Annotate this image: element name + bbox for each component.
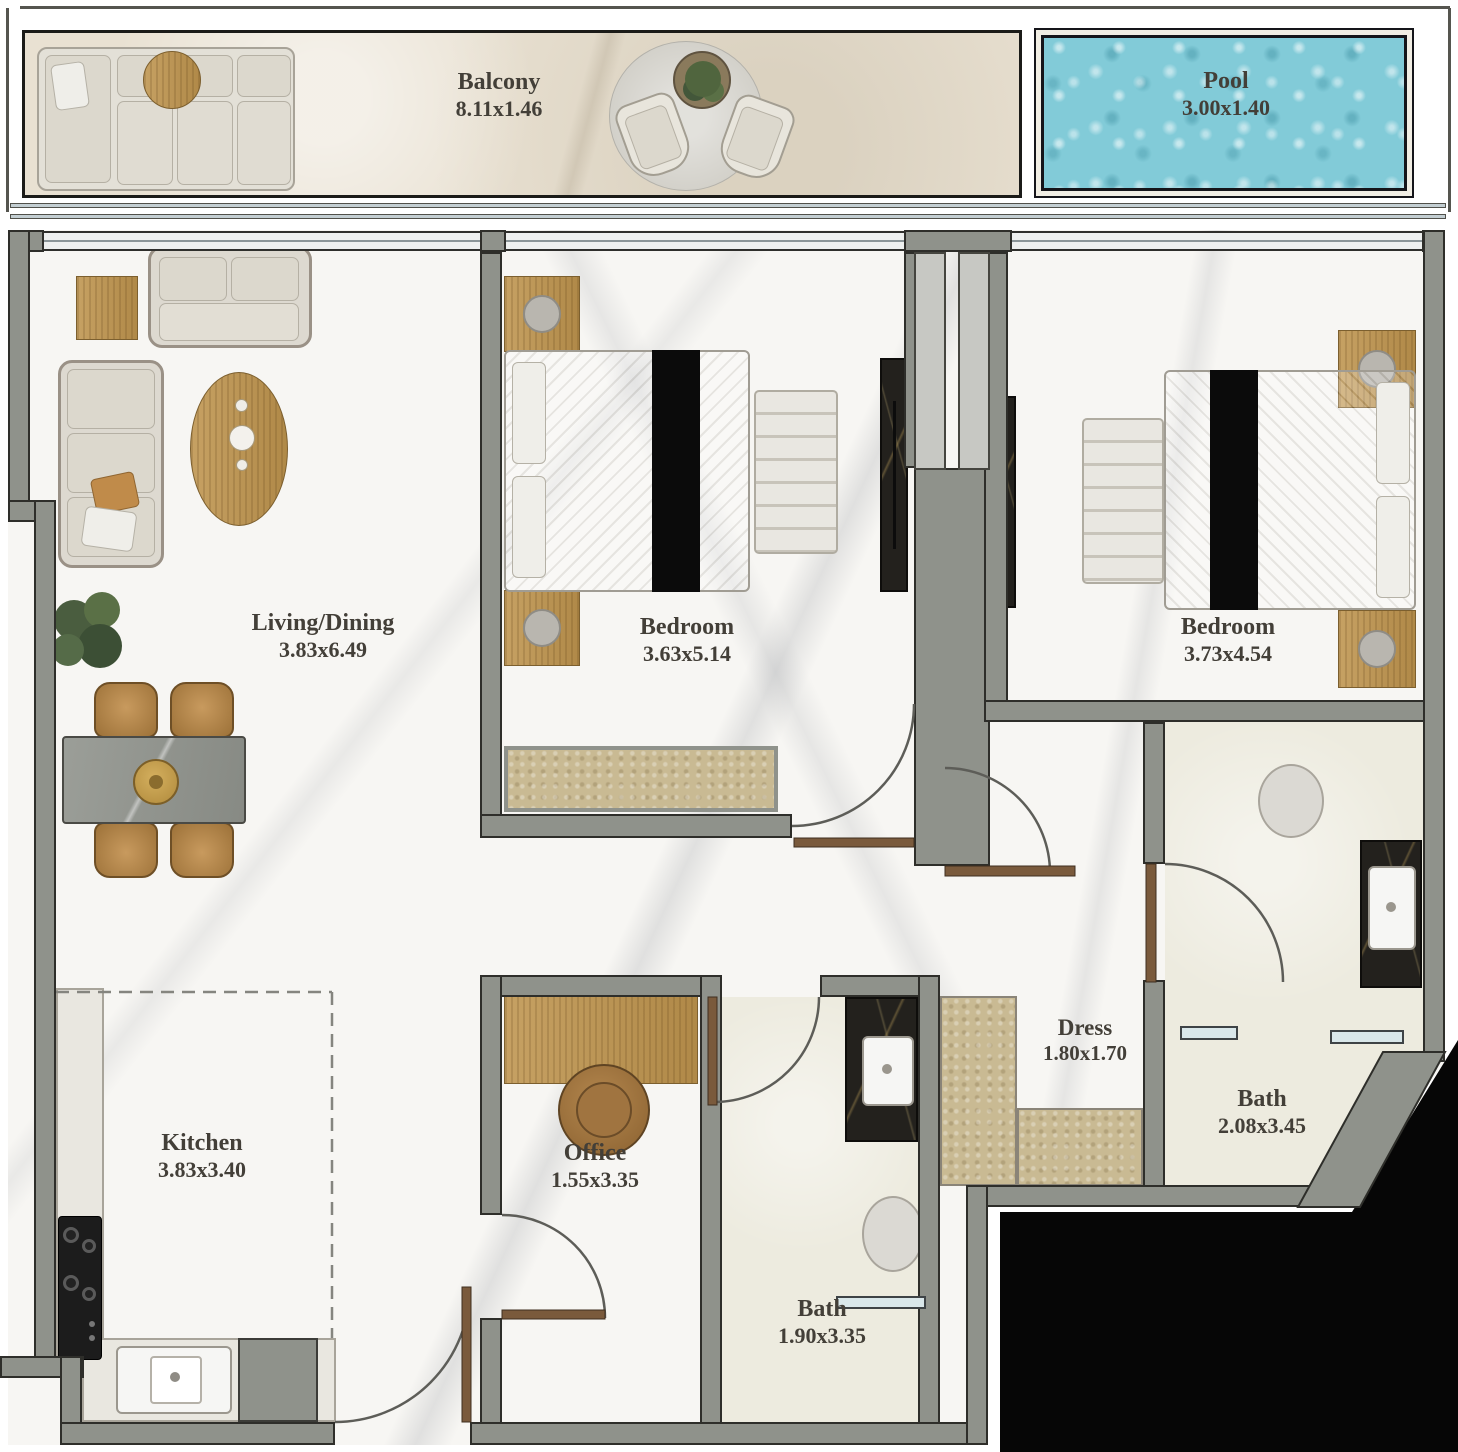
room-dims: 8.11x1.46 bbox=[456, 96, 543, 121]
pool-area: Pool 3.00x1.40 bbox=[1034, 28, 1414, 198]
stove bbox=[58, 1216, 102, 1360]
bed-runner bbox=[652, 350, 700, 592]
wall-lower-right bbox=[966, 1185, 988, 1445]
room-label-dress: Dress 1.80x1.70 bbox=[1043, 1014, 1127, 1066]
sofa-cushion bbox=[67, 369, 155, 429]
dining-table bbox=[62, 736, 246, 824]
washbasin bbox=[862, 1036, 914, 1106]
bench bbox=[1082, 418, 1164, 584]
kitchen-sink bbox=[116, 1346, 232, 1414]
room-name: Bath bbox=[778, 1296, 866, 1323]
table-centerpiece bbox=[133, 759, 179, 805]
room-name: Bath bbox=[1218, 1086, 1306, 1113]
dining-chair bbox=[94, 682, 158, 738]
bedside-lamp bbox=[523, 609, 561, 647]
room-dims: 3.83x3.40 bbox=[158, 1157, 246, 1182]
table-decor bbox=[229, 425, 255, 451]
sink-drain bbox=[170, 1372, 180, 1382]
room-label-living: Living/Dining 3.83x6.49 bbox=[252, 610, 395, 662]
dress-wardrobe bbox=[940, 996, 1017, 1186]
room-label-balcony: Balcony 8.11x1.46 bbox=[456, 69, 543, 121]
nightstand bbox=[1338, 610, 1416, 688]
wall-living-bedroom1 bbox=[480, 252, 502, 836]
wardrobe-handle bbox=[893, 401, 896, 548]
sofa-seat-cushion bbox=[177, 101, 233, 185]
wall-bath2-left bbox=[1143, 722, 1165, 864]
bedside-lamp bbox=[1358, 630, 1396, 668]
toilet bbox=[1258, 764, 1324, 838]
bed bbox=[1164, 370, 1416, 610]
shower-glass bbox=[1330, 1030, 1404, 1044]
wall-bottom-left bbox=[60, 1356, 82, 1426]
window-bedroom1 bbox=[506, 231, 904, 251]
sofa-seat-cushion bbox=[117, 101, 173, 185]
side-table bbox=[76, 276, 138, 340]
chair-seat bbox=[576, 1082, 632, 1138]
loveseat-seat bbox=[159, 303, 299, 341]
wall-left-upper bbox=[8, 230, 30, 522]
dresser bbox=[504, 746, 778, 812]
table-decor bbox=[236, 459, 248, 471]
room-dims: 3.00x1.40 bbox=[1182, 95, 1270, 120]
room-dims: 1.90x3.35 bbox=[778, 1323, 866, 1348]
loveseat bbox=[148, 246, 312, 348]
wall-bath2-left bbox=[1143, 980, 1165, 1187]
coffee-table bbox=[190, 372, 288, 526]
basin-drain bbox=[882, 1064, 892, 1074]
sofa-back-cushion bbox=[237, 55, 291, 97]
wall-bedroom1-bottom bbox=[480, 814, 792, 838]
wall-office-right bbox=[700, 975, 722, 1424]
room-label-kitchen: Kitchen 3.83x3.40 bbox=[158, 1130, 246, 1182]
plant-leaf bbox=[78, 624, 122, 668]
stove-knob bbox=[89, 1335, 95, 1341]
room-label-bath2: Bath 2.08x3.45 bbox=[1218, 1086, 1306, 1138]
outdoor-table bbox=[673, 51, 731, 109]
room-name: Balcony bbox=[456, 69, 543, 96]
chair-cushion bbox=[623, 103, 683, 171]
wall-bedroom2-bottom bbox=[984, 700, 1425, 722]
room-label-bath1: Bath 1.90x3.35 bbox=[778, 1296, 866, 1348]
frame-line-left bbox=[6, 8, 9, 212]
plant-leaf bbox=[84, 592, 120, 628]
frame-line-right bbox=[1448, 8, 1451, 212]
window-bedroom2 bbox=[1012, 231, 1422, 251]
bed-pillow bbox=[1376, 382, 1410, 484]
wall-right bbox=[1423, 230, 1445, 1062]
sofa-pillow bbox=[50, 61, 90, 111]
bedside-lamp bbox=[523, 295, 561, 333]
basin-drain bbox=[1386, 902, 1396, 912]
wall-office-top bbox=[480, 975, 714, 997]
sofa-pillow bbox=[80, 506, 137, 553]
potted-plant-icon bbox=[685, 61, 721, 97]
shaft bbox=[958, 252, 990, 470]
frame-line-top bbox=[20, 6, 1450, 9]
plant-leaf bbox=[52, 634, 84, 666]
wall-central bbox=[914, 468, 990, 866]
toilet bbox=[862, 1196, 924, 1272]
room-dims: 2.08x3.45 bbox=[1218, 1113, 1306, 1138]
dining-chair bbox=[170, 682, 234, 738]
wall-bottom bbox=[470, 1422, 980, 1445]
bed-pillow bbox=[1376, 496, 1410, 598]
burner bbox=[82, 1287, 96, 1301]
bed-pillow bbox=[512, 476, 546, 578]
room-dims: 1.55x3.35 bbox=[551, 1167, 639, 1192]
room-name: Pool bbox=[1182, 68, 1270, 95]
dining-chair bbox=[94, 822, 158, 878]
wall-office-left bbox=[480, 975, 502, 1215]
room-name: Kitchen bbox=[158, 1130, 246, 1157]
room-label-bedroom2: Bedroom 3.73x4.54 bbox=[1181, 614, 1275, 666]
burner bbox=[63, 1227, 79, 1243]
balcony-rail-line bbox=[10, 214, 1446, 219]
nightstand bbox=[504, 276, 580, 352]
room-name: Living/Dining bbox=[252, 610, 395, 637]
room-label-bedroom1: Bedroom 3.63x5.14 bbox=[640, 614, 734, 666]
wall-bath1-right bbox=[918, 975, 940, 1424]
chair-cushion bbox=[724, 105, 784, 173]
room-name: Dress bbox=[1043, 1014, 1127, 1041]
dress-wardrobe bbox=[1017, 1108, 1143, 1186]
loveseat-cushion bbox=[231, 257, 299, 301]
window-living bbox=[44, 231, 480, 251]
floor-plan-canvas: Balcony 8.11x1.46 Pool 3.00x1.40 bbox=[0, 0, 1458, 1452]
room-dims: 3.63x5.14 bbox=[640, 641, 734, 666]
room-dims: 1.80x1.70 bbox=[1043, 1041, 1127, 1066]
wall bbox=[480, 230, 506, 252]
stove-knob bbox=[89, 1321, 95, 1327]
dining-chair bbox=[170, 822, 234, 878]
balcony-area: Balcony 8.11x1.46 bbox=[22, 30, 1022, 198]
wall-office-left bbox=[480, 1318, 502, 1424]
centerpiece-dot bbox=[149, 775, 163, 789]
kitchen-cabinet bbox=[238, 1338, 318, 1422]
room-name: Office bbox=[551, 1140, 639, 1167]
nightstand bbox=[504, 590, 580, 666]
sofa-seat-cushion bbox=[237, 101, 291, 185]
bed-pillow bbox=[512, 362, 546, 464]
bench bbox=[754, 390, 838, 554]
room-name: Bedroom bbox=[640, 614, 734, 641]
outdoor-side-table bbox=[143, 51, 201, 109]
balcony-rail-line bbox=[10, 203, 1446, 208]
burner bbox=[82, 1239, 96, 1253]
wall-left-lower bbox=[34, 500, 56, 1360]
room-dims: 3.73x4.54 bbox=[1181, 641, 1275, 666]
wall-bath2-bottom bbox=[966, 1185, 1358, 1207]
sofa bbox=[58, 360, 164, 568]
shaft bbox=[914, 252, 946, 470]
table-decor bbox=[235, 399, 248, 412]
loveseat-cushion bbox=[159, 257, 227, 301]
bed bbox=[504, 350, 750, 592]
room-name: Bedroom bbox=[1181, 614, 1275, 641]
plant bbox=[50, 590, 134, 674]
room-dims: 3.83x6.49 bbox=[252, 637, 395, 662]
burner bbox=[63, 1275, 79, 1291]
bed-runner bbox=[1210, 370, 1258, 610]
wall bbox=[904, 230, 1012, 252]
washbasin bbox=[1368, 866, 1416, 950]
shower-glass bbox=[1180, 1026, 1238, 1040]
room-label-office: Office 1.55x3.35 bbox=[551, 1140, 639, 1192]
wall-bottom bbox=[60, 1422, 335, 1445]
room-label-pool: Pool 3.00x1.40 bbox=[1182, 68, 1270, 120]
